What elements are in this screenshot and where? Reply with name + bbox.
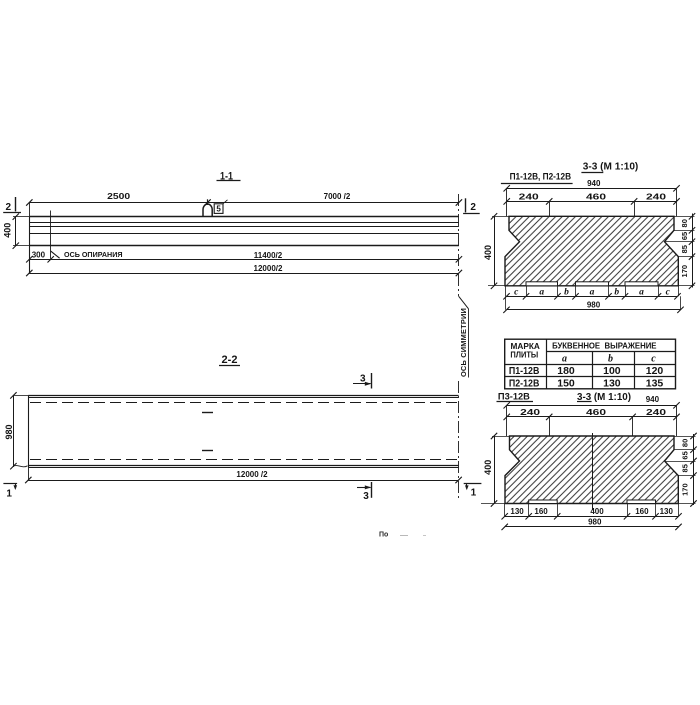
svg-text:170: 170 xyxy=(681,483,690,496)
svg-text:1: 1 xyxy=(6,489,12,500)
svg-text:2: 2 xyxy=(6,202,12,213)
svg-text:12000/2: 12000/2 xyxy=(254,264,283,273)
svg-text:85: 85 xyxy=(680,245,689,253)
svg-text:b: b xyxy=(564,287,569,297)
svg-text:П1-12В: П1-12В xyxy=(509,366,540,377)
svg-text:b: b xyxy=(614,287,619,297)
svg-text:170: 170 xyxy=(680,265,689,278)
svg-text:160: 160 xyxy=(534,507,548,516)
svg-text:100: 100 xyxy=(603,365,621,377)
svg-text:180: 180 xyxy=(557,365,575,377)
svg-text:a: a xyxy=(639,287,644,297)
svg-text:65: 65 xyxy=(680,232,689,240)
svg-text:a: a xyxy=(562,353,567,364)
svg-text:80: 80 xyxy=(681,439,690,447)
svg-text:980: 980 xyxy=(588,518,602,527)
svg-text:940: 940 xyxy=(587,179,601,188)
svg-text:940: 940 xyxy=(646,395,660,404)
svg-text:120: 120 xyxy=(646,365,664,377)
svg-text:2500: 2500 xyxy=(107,192,131,201)
svg-text:П3-12В: П3-12В xyxy=(498,391,531,401)
svg-text:240: 240 xyxy=(646,408,667,417)
svg-text:7000 /2: 7000 /2 xyxy=(324,192,351,201)
svg-text:П2-12В: П2-12В xyxy=(509,379,540,390)
svg-text:300: 300 xyxy=(32,250,46,259)
svg-text:400: 400 xyxy=(483,460,493,475)
svg-text:2: 2 xyxy=(470,202,476,213)
svg-text:130: 130 xyxy=(660,507,674,516)
svg-text:b: b xyxy=(608,353,613,364)
svg-text:160: 160 xyxy=(635,507,649,516)
svg-text:240: 240 xyxy=(646,193,667,202)
svg-text:a: a xyxy=(539,287,544,297)
svg-text:2-2: 2-2 xyxy=(222,354,238,366)
svg-text:240: 240 xyxy=(520,408,541,417)
svg-text:ОСЬ СИММЕТРИИ: ОСЬ СИММЕТРИИ xyxy=(459,308,468,377)
svg-text:ОСЬ ОПИРАНИЯ: ОСЬ ОПИРАНИЯ xyxy=(64,250,123,259)
svg-text:a: a xyxy=(590,287,595,297)
svg-text:240: 240 xyxy=(519,193,540,202)
svg-text:135: 135 xyxy=(646,378,664,390)
svg-text:65: 65 xyxy=(681,451,690,459)
svg-text:1: 1 xyxy=(471,487,477,498)
svg-text:400: 400 xyxy=(2,223,12,238)
svg-text:12000 /2: 12000 /2 xyxy=(236,470,268,479)
svg-text:80: 80 xyxy=(680,219,689,227)
svg-text:БУКВЕННОЕ: БУКВЕННОЕ xyxy=(552,342,600,351)
svg-text:ПЛИТЫ: ПЛИТЫ xyxy=(510,350,538,359)
svg-text:3-3 (М 1:10): 3-3 (М 1:10) xyxy=(583,161,639,172)
svg-text:460: 460 xyxy=(586,408,607,417)
svg-text:5: 5 xyxy=(216,205,221,214)
svg-text:130: 130 xyxy=(603,378,621,390)
svg-text:П1-12В, П2-12В: П1-12В, П2-12В xyxy=(510,172,572,182)
svg-text:3: 3 xyxy=(363,491,369,502)
svg-text:400: 400 xyxy=(483,245,493,260)
svg-text:980: 980 xyxy=(587,301,601,310)
svg-text:По: По xyxy=(379,532,388,539)
svg-text:150: 150 xyxy=(557,378,575,390)
svg-text:85: 85 xyxy=(681,464,690,472)
svg-text:c: c xyxy=(651,353,656,364)
svg-text:3: 3 xyxy=(360,373,366,384)
svg-text:400: 400 xyxy=(590,507,604,516)
svg-text:460: 460 xyxy=(586,193,607,202)
svg-text:130: 130 xyxy=(510,507,524,516)
svg-text:ВЫРАЖЕНИЕ: ВЫРАЖЕНИЕ xyxy=(605,342,658,351)
svg-text:11400/2: 11400/2 xyxy=(254,251,283,260)
svg-text:980: 980 xyxy=(4,424,14,439)
